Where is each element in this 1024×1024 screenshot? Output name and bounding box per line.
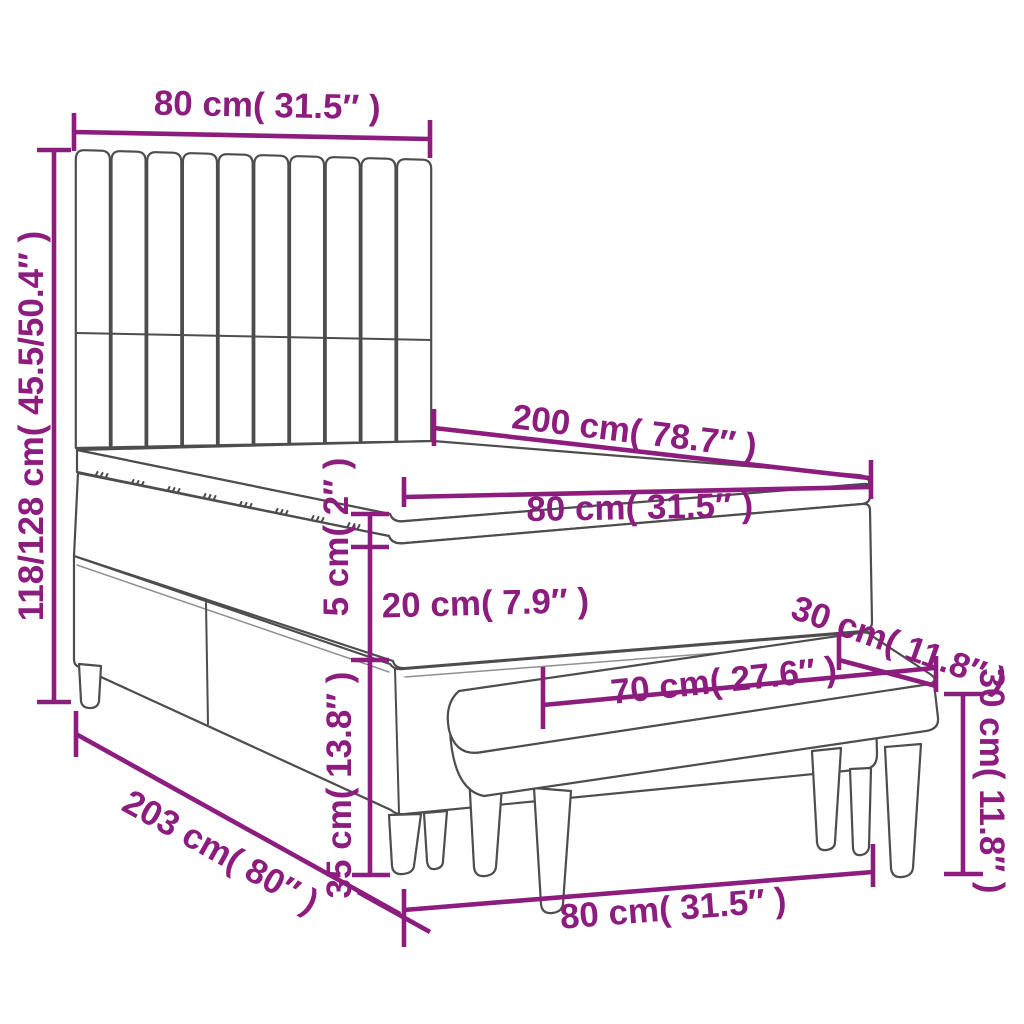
bed-dimension-diagram: 80 cm( 31.5″ ) 118/128 cm( 45.5/50.4″ ) … <box>0 0 1024 1024</box>
diagram-canvas: 80 cm( 31.5″ ) 118/128 cm( 45.5/50.4″ ) … <box>0 0 1024 1024</box>
headboard-slat <box>183 153 217 446</box>
headboard-slat <box>147 152 181 446</box>
dim-label-topper-thickness: 5 cm( 2″ ) <box>317 458 356 617</box>
dim-label-mattress-width: 80 cm( 31.5″ ) <box>526 486 754 529</box>
dim-label-mattress-thickness: 20 cm( 7.9″ ) <box>381 581 589 625</box>
headboard-slat <box>290 156 324 444</box>
headboard-slat <box>254 155 288 444</box>
bench-leg-back-right <box>812 748 841 850</box>
bed-leg-foot-far <box>850 768 871 855</box>
headboard <box>76 150 431 448</box>
bed-leg-front-right <box>389 814 421 874</box>
dim-headboard-width: 80 cm( 31.5″ ) <box>74 84 430 158</box>
dim-label-base-height: 35 cm( 13.8″ ) <box>320 672 359 899</box>
headboard-slat <box>219 154 253 445</box>
bench-leg-front-left <box>534 788 571 913</box>
dim-bench-height: 30 cm( 11.8″ ) <box>944 669 1011 894</box>
headboard-slat <box>397 159 431 442</box>
dim-label-frame-length: 203 cm( 80″ ) <box>116 782 325 921</box>
headboard-slat <box>76 150 110 448</box>
dim-label-headboard-width: 80 cm( 31.5″ ) <box>153 84 381 128</box>
headboard-slat <box>326 157 360 443</box>
bed-leg-front-left <box>79 664 101 708</box>
dim-label-footprint-width: 80 cm( 31.5″ ) <box>559 880 788 936</box>
dim-label-total-height: 118/128 cm( 45.5/50.4″ ) <box>12 231 51 621</box>
headboard-slat <box>361 158 395 442</box>
dim-label-bench-height: 30 cm( 11.8″ ) <box>972 669 1011 894</box>
headboard-slat <box>112 151 146 447</box>
bed-leg-front-right-rear <box>424 811 447 869</box>
bench-leg-front-right <box>885 744 921 877</box>
dim-total-height: 118/128 cm( 45.5/50.4″ ) <box>12 150 71 702</box>
